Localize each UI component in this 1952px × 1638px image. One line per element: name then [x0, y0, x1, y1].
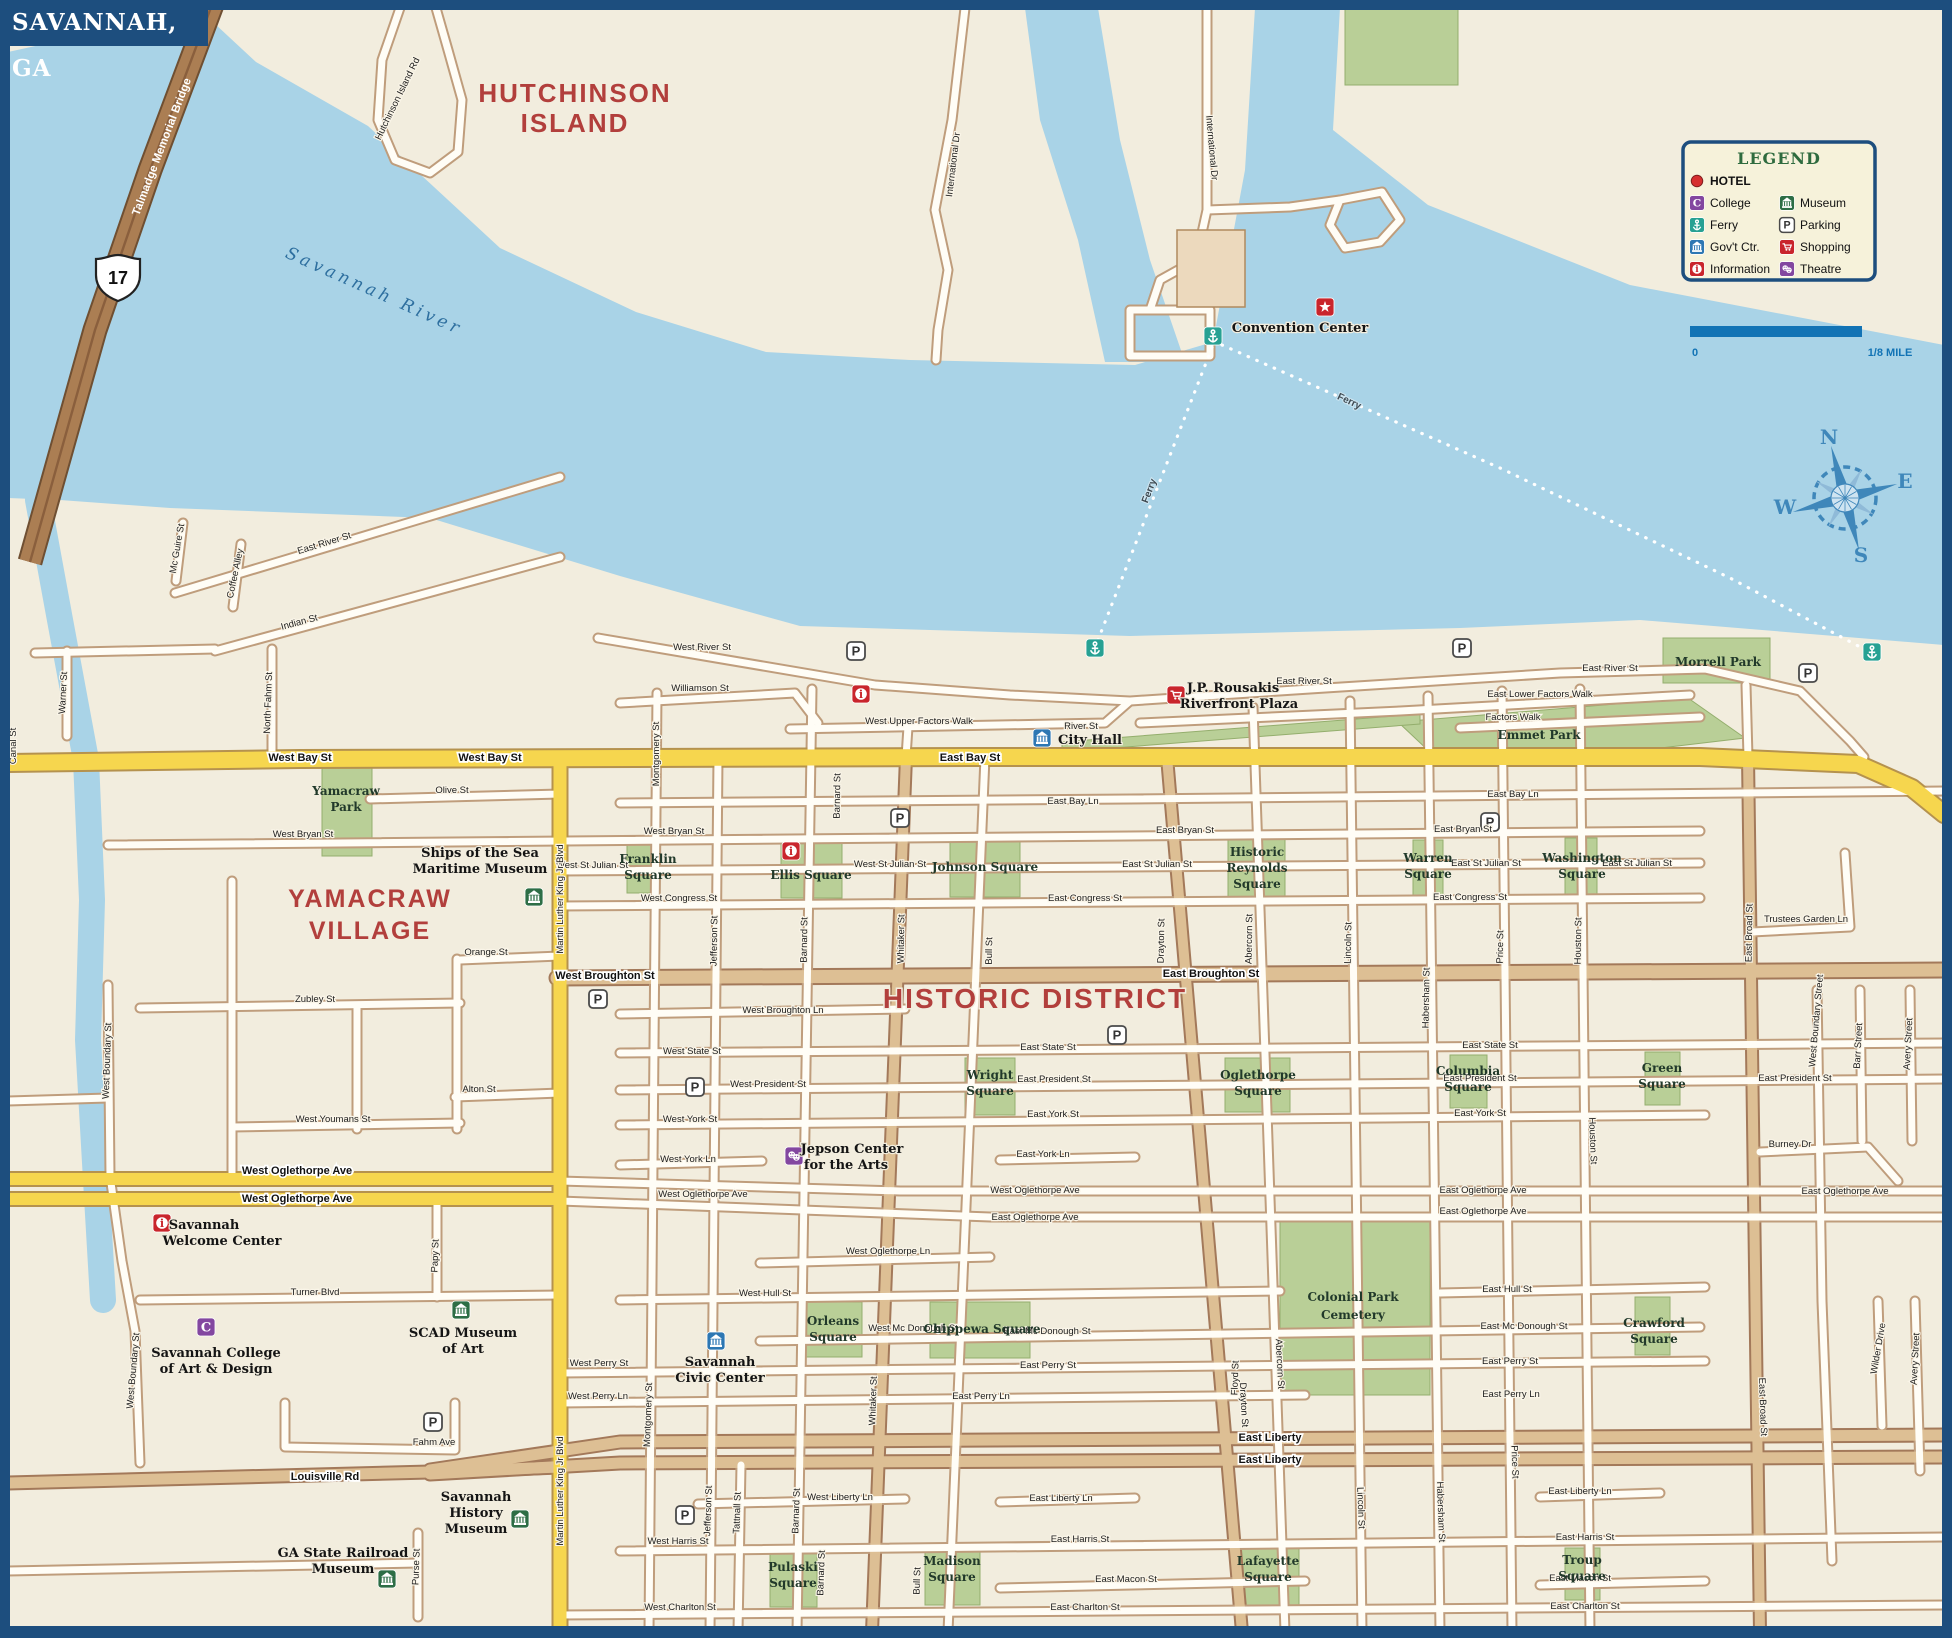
legend-college-icon: C — [1690, 196, 1705, 211]
parking-icon: P — [1453, 639, 1471, 657]
street-label: Houston St — [1573, 917, 1585, 965]
street-label: East Broughton St — [1163, 968, 1260, 980]
street-label: West Perry St — [570, 1358, 629, 1369]
street-label: East State St — [1462, 1040, 1518, 1051]
ferry-icon — [1863, 643, 1881, 661]
park-label: Madison — [923, 1554, 981, 1568]
street-label: West River St — [673, 642, 731, 653]
street-label: West Charlton St — [644, 1602, 716, 1613]
landmark-label: Museum — [312, 1562, 375, 1577]
street-label: West Bryan St — [273, 829, 334, 840]
street-label: Bull St — [984, 937, 995, 965]
landmark-label: of Art & Design — [160, 1362, 273, 1377]
area-label: VILLAGE — [309, 917, 431, 945]
park-label: Franklin — [619, 852, 677, 866]
legend-shop-icon — [1780, 240, 1795, 255]
park-label: Orleans — [807, 1314, 859, 1328]
park-label: Square — [966, 1084, 1014, 1098]
museum-icon — [511, 1510, 529, 1528]
street-label: West St Julian St — [854, 859, 927, 870]
park-label: Morrell Park — [1675, 655, 1762, 669]
legend-label: Information — [1710, 262, 1770, 276]
svg-text:i: i — [1695, 265, 1699, 275]
park-label: Troup — [1562, 1553, 1602, 1567]
park-label: Square — [809, 1330, 857, 1344]
parking-icon: P — [1799, 664, 1817, 682]
street-label: East Liberty — [1239, 1432, 1303, 1444]
govt-icon — [1033, 729, 1051, 747]
street-label: Purse St — [410, 1548, 422, 1585]
landmark-label: SCAD Museum — [409, 1326, 518, 1341]
map-title-banner: SAVANNAH, GA — [0, 0, 208, 46]
street-label: Whitaker St — [896, 914, 908, 964]
road — [1746, 685, 1748, 757]
park-label: Green — [1642, 1061, 1683, 1075]
street-label: East Charlton St — [1550, 1601, 1620, 1612]
street-label: Orange St — [464, 947, 508, 958]
street-label: Houston St — [1586, 1117, 1599, 1165]
legend-label: Shopping — [1800, 240, 1851, 254]
parking-icon: P — [1108, 1026, 1126, 1044]
street-label: Jefferson St — [709, 915, 721, 966]
landmark-label: History — [449, 1506, 503, 1521]
street-label: East Bryan St — [1156, 825, 1214, 836]
park-label: Pulaski — [768, 1560, 818, 1574]
street-label: West Upper Factors Walk — [865, 716, 973, 727]
street-label: West Liberty Ln — [807, 1492, 873, 1503]
park-label: Square — [1244, 1570, 1292, 1584]
legend-theatre-icon — [1780, 262, 1795, 277]
street-label: Turner Blvd — [291, 1287, 340, 1298]
street-label: Olive St — [435, 785, 469, 796]
ferry-icon — [1204, 327, 1222, 345]
park-label: Square — [1558, 867, 1606, 881]
park-label: Historic — [1230, 845, 1284, 859]
svg-text:P: P — [1458, 641, 1467, 656]
compass-letter-w: W — [1773, 495, 1797, 519]
street-label: West Youmans St — [296, 1114, 371, 1125]
svg-text:P: P — [896, 811, 905, 826]
park-label: Washington — [1541, 851, 1622, 865]
street-label: East Harris St — [1051, 1534, 1110, 1545]
street-label: West Broughton Ln — [742, 1005, 823, 1016]
street-label: West Oglethorpe Ave — [242, 1165, 352, 1177]
street-label: West Bay St — [268, 752, 332, 764]
legend-label: Parking — [1800, 218, 1841, 232]
street-label: Habersham St — [1434, 1481, 1447, 1542]
street-label: East St Julian St — [1122, 859, 1192, 870]
street-label: East River St — [1582, 663, 1638, 674]
area-label: HUTCHINSON — [478, 78, 671, 108]
landmark-label: Civic Center — [675, 1371, 765, 1386]
park-label: Yamacraw — [311, 784, 380, 798]
street-label: Price St — [1508, 1445, 1520, 1479]
street-label: Factors Walk — [1485, 712, 1540, 723]
park-label: Square — [1404, 867, 1452, 881]
street-label: East Congress St — [1048, 893, 1122, 904]
street-label: East York St — [1027, 1109, 1079, 1120]
street-label: Martin Luther King Jr Blvd — [555, 1436, 566, 1545]
legend-label: College — [1710, 196, 1751, 210]
road — [140, 1295, 560, 1300]
street-label: West York Ln — [660, 1154, 716, 1165]
svg-text:P: P — [691, 1080, 700, 1095]
svg-text:P: P — [594, 992, 603, 1007]
street-label: West Oglethorpe Ave — [242, 1193, 352, 1205]
street-label: West Oglethorpe Ave — [990, 1185, 1079, 1196]
landmark-label: Ships of the Sea — [421, 846, 539, 861]
park-label: Cemetery — [1321, 1308, 1386, 1322]
street-label: East Perry Ln — [952, 1391, 1010, 1402]
info-icon: i — [852, 685, 870, 703]
street-label: East Bay Ln — [1487, 789, 1538, 800]
street-label: Burney Dr — [1769, 1139, 1812, 1150]
svg-text:i: i — [859, 688, 863, 701]
landmark-label: Savannah — [441, 1490, 512, 1505]
street-label: West State St — [663, 1046, 721, 1057]
park-label: Square — [1234, 1084, 1282, 1098]
compass-letter-n: N — [1820, 425, 1838, 449]
legend-label: Museum — [1800, 196, 1846, 210]
park-area — [1345, 8, 1458, 85]
street-label: Floyd St — [1229, 1360, 1241, 1396]
museum-icon — [525, 888, 543, 906]
street-label: East Oglethorpe Ave — [1440, 1185, 1527, 1196]
parking-icon: P — [686, 1078, 704, 1096]
street-label: Zubley St — [295, 994, 335, 1005]
street-label: Martin Luther King Jr Blvd — [555, 844, 566, 953]
svg-text:i: i — [789, 845, 793, 858]
legend-parking-icon: P — [1780, 218, 1795, 233]
park-label: Square — [769, 1576, 817, 1590]
street-label: East Oglethorpe Ave — [992, 1212, 1079, 1223]
landmark-label: of Art — [442, 1342, 484, 1357]
street-label: East Liberty Ln — [1029, 1493, 1092, 1504]
street-label: Williamson St — [671, 683, 729, 694]
street-label: East Harris St — [1556, 1532, 1615, 1543]
legend-title: LEGEND — [1737, 149, 1821, 168]
park-label: Emmet Park — [1497, 728, 1581, 742]
street-label: West Broughton St — [555, 970, 655, 982]
scale-distance: 1/8 MILE — [1868, 347, 1913, 359]
street-label: West York St — [663, 1114, 718, 1125]
street-label: East Broad St — [1756, 1377, 1769, 1436]
street-label: East Charlton St — [1050, 1602, 1120, 1613]
scale-bar-rect — [1690, 326, 1862, 337]
street-label: West Perry Ln — [568, 1391, 628, 1402]
convention-center-building — [1177, 230, 1245, 307]
street-label: Bull St — [912, 1567, 924, 1595]
landmark-label: GA State Railroad — [278, 1546, 409, 1561]
street-label: East St Julian St — [1451, 858, 1521, 869]
park-label: Columbia — [1436, 1064, 1500, 1078]
map-border-bottom — [0, 1626, 1952, 1638]
park-label: Square — [624, 868, 672, 882]
street-label: East Liberty Ln — [1548, 1486, 1611, 1497]
compass-letter-s: S — [1854, 543, 1868, 567]
legend-label: Gov't Ctr. — [1710, 240, 1760, 254]
street-label: East Bryan St — [1434, 824, 1492, 835]
street-label: Barnard St — [790, 1488, 803, 1534]
road — [8, 1098, 108, 1101]
street-label: Whitaker St — [867, 1376, 880, 1426]
park-label: Chippewa Square — [923, 1322, 1040, 1336]
street-label: East President St — [1017, 1074, 1091, 1085]
street-label: Lincoln St — [1354, 1487, 1366, 1529]
street-label: West Hull St — [739, 1288, 791, 1299]
street-label: East Hull St — [1482, 1284, 1532, 1295]
park-label: Square — [1233, 877, 1281, 891]
park-label: Oglethorpe — [1220, 1068, 1296, 1082]
landmark-label: J.P. Rousakis — [1186, 681, 1279, 696]
legend-info-icon: i — [1690, 262, 1705, 277]
street-label: Fahm Ave — [413, 1437, 456, 1448]
parking-icon: P — [424, 1413, 442, 1431]
landmark-label: Savannah College — [151, 1346, 281, 1361]
svg-text:P: P — [852, 644, 861, 659]
landmark-label: Convention Center — [1232, 321, 1369, 336]
park-label: Crawford — [1623, 1316, 1685, 1330]
info-icon: i — [782, 842, 800, 860]
legend: LEGENDHOTELCollegeMuseumFerryParkingGov'… — [1683, 142, 1875, 280]
landmark-label: City Hall — [1058, 733, 1122, 748]
parking-icon: P — [676, 1506, 694, 1524]
svg-text:17: 17 — [108, 268, 128, 288]
area-label: YAMACRAW — [288, 885, 452, 913]
compass-letter-e: E — [1897, 469, 1912, 493]
college-icon: C — [197, 1318, 215, 1336]
park-label: Wright — [966, 1068, 1014, 1082]
area-label: HISTORIC DISTRICT — [883, 983, 1187, 1014]
street-label: Tattnall St — [731, 1492, 743, 1534]
street-label: North Fahm St — [262, 672, 275, 734]
street-label: East York Ln — [1016, 1149, 1069, 1160]
street-label: East Perry St — [1482, 1356, 1538, 1367]
landmark-label: Savannah — [169, 1218, 240, 1233]
street-label: West Oglethorpe Ln — [846, 1246, 930, 1257]
landmark-label: Maritime Museum — [413, 862, 548, 877]
street-label: West St Julian St — [556, 860, 629, 871]
street-label: Trustees Garden Ln — [1764, 914, 1848, 925]
street-label: Barnard St — [799, 917, 811, 963]
street-label: Price St — [1495, 930, 1507, 964]
museum-icon — [452, 1301, 470, 1319]
street-label: West Bay St — [458, 752, 522, 764]
street-label: East Lower Factors Walk — [1487, 689, 1592, 700]
street-label: East Perry Ln — [1482, 1389, 1540, 1400]
street-label: East Oglethorpe Ave — [1802, 1186, 1889, 1197]
park-label: Square — [1638, 1077, 1686, 1091]
street-label: Warner St — [57, 671, 70, 714]
street-label: West President St — [730, 1079, 806, 1090]
landmark-label: Savannah — [685, 1355, 756, 1370]
svg-text:P: P — [1783, 220, 1790, 232]
svg-text:i: i — [160, 1217, 164, 1230]
govt-icon — [707, 1332, 725, 1350]
svg-text:C: C — [1693, 197, 1701, 210]
legend-label: Theatre — [1800, 262, 1842, 276]
park-label: Lafayette — [1237, 1554, 1300, 1568]
landmark-label: Welcome Center — [161, 1234, 281, 1249]
street-label: East Broad St — [1743, 903, 1755, 962]
street-label: West Congress St — [641, 893, 718, 904]
park-label: Warren — [1402, 851, 1452, 865]
parking-icon: P — [589, 990, 607, 1008]
street-label: Drayton St — [1156, 918, 1168, 963]
street-label: River St — [1064, 721, 1098, 732]
svg-text:P: P — [429, 1415, 438, 1430]
legend-label: Ferry — [1710, 218, 1738, 232]
street-label: Habersham St — [1420, 967, 1432, 1028]
street-label: East River St — [1276, 676, 1332, 687]
park-label: Reynolds — [1226, 861, 1287, 875]
svg-text:P: P — [681, 1508, 690, 1523]
street-label: East Bay St — [940, 752, 1001, 764]
svg-text:C: C — [201, 1321, 211, 1336]
park-label: Colonial Park — [1307, 1290, 1399, 1304]
parking-icon: P — [847, 642, 865, 660]
park-label: Johnson Square — [931, 860, 1039, 874]
landmark-label: Museum — [445, 1522, 508, 1537]
ferry-icon — [1086, 639, 1104, 657]
street-label: Montgomery St — [642, 1382, 655, 1447]
street-label: Jefferson St — [702, 1485, 715, 1536]
landmark-label: Riverfront Plaza — [1180, 697, 1299, 712]
road — [738, 1465, 741, 1632]
museum-icon — [378, 1570, 396, 1588]
street-label: East Mc Donough St — [1480, 1321, 1567, 1332]
street-label: Barnard St — [832, 773, 844, 819]
street-label: East Macon St — [1095, 1574, 1157, 1585]
street-label: East Liberty — [1239, 1454, 1303, 1466]
street-label: Lincoln St — [1343, 922, 1355, 964]
map-canvas: CiiiPPPPPPPPPPWest River StWilliamson St… — [0, 0, 1952, 1638]
svg-text:P: P — [1804, 666, 1813, 681]
savannah-map: SAVANNAH, GA CiiiPPPPPPPPPPWest River St… — [0, 0, 1952, 1638]
park-label: Square — [1444, 1080, 1492, 1094]
park-label: Park — [330, 800, 362, 814]
street-label: East York St — [1454, 1108, 1506, 1119]
star-icon — [1316, 298, 1334, 316]
park-label: Square — [928, 1570, 976, 1584]
street-label: East Congress St — [1433, 892, 1507, 903]
street-label: West Harris St — [647, 1536, 708, 1547]
street-label: Alton St — [462, 1084, 496, 1095]
legend-label: HOTEL — [1710, 174, 1751, 188]
park-label: Ellis Square — [770, 868, 852, 882]
street-label: East State St — [1020, 1042, 1076, 1053]
street-label: East Bay Ln — [1047, 796, 1098, 807]
park-label: Square — [1558, 1569, 1606, 1583]
landmark-label: Jepson Center — [800, 1142, 904, 1157]
street-label: East Oglethorpe Ave — [1440, 1206, 1527, 1217]
park-label: Square — [1630, 1332, 1678, 1346]
parking-icon: P — [891, 809, 909, 827]
street-label: West Oglethorpe Ave — [658, 1189, 747, 1200]
street-label: Montgomery St — [651, 721, 662, 786]
street-label: East President St — [1758, 1073, 1832, 1084]
road — [35, 649, 215, 653]
landmark-label: for the Arts — [804, 1158, 888, 1173]
legend-hotel-icon — [1691, 175, 1702, 186]
legend-ferry-icon — [1690, 218, 1705, 233]
street-label: Louisville Rd — [291, 1471, 359, 1483]
svg-text:P: P — [1113, 1028, 1122, 1043]
legend-museum-icon — [1780, 196, 1795, 211]
street-label: West Bryan St — [644, 826, 705, 837]
street-label: East Perry St — [1020, 1360, 1076, 1371]
scale-zero: 0 — [1692, 347, 1698, 359]
legend-govt-icon — [1690, 240, 1705, 255]
street-label: Abercorn St — [1244, 913, 1256, 964]
street-label: Papy St — [429, 1239, 441, 1273]
area-label: ISLAND — [521, 108, 630, 138]
